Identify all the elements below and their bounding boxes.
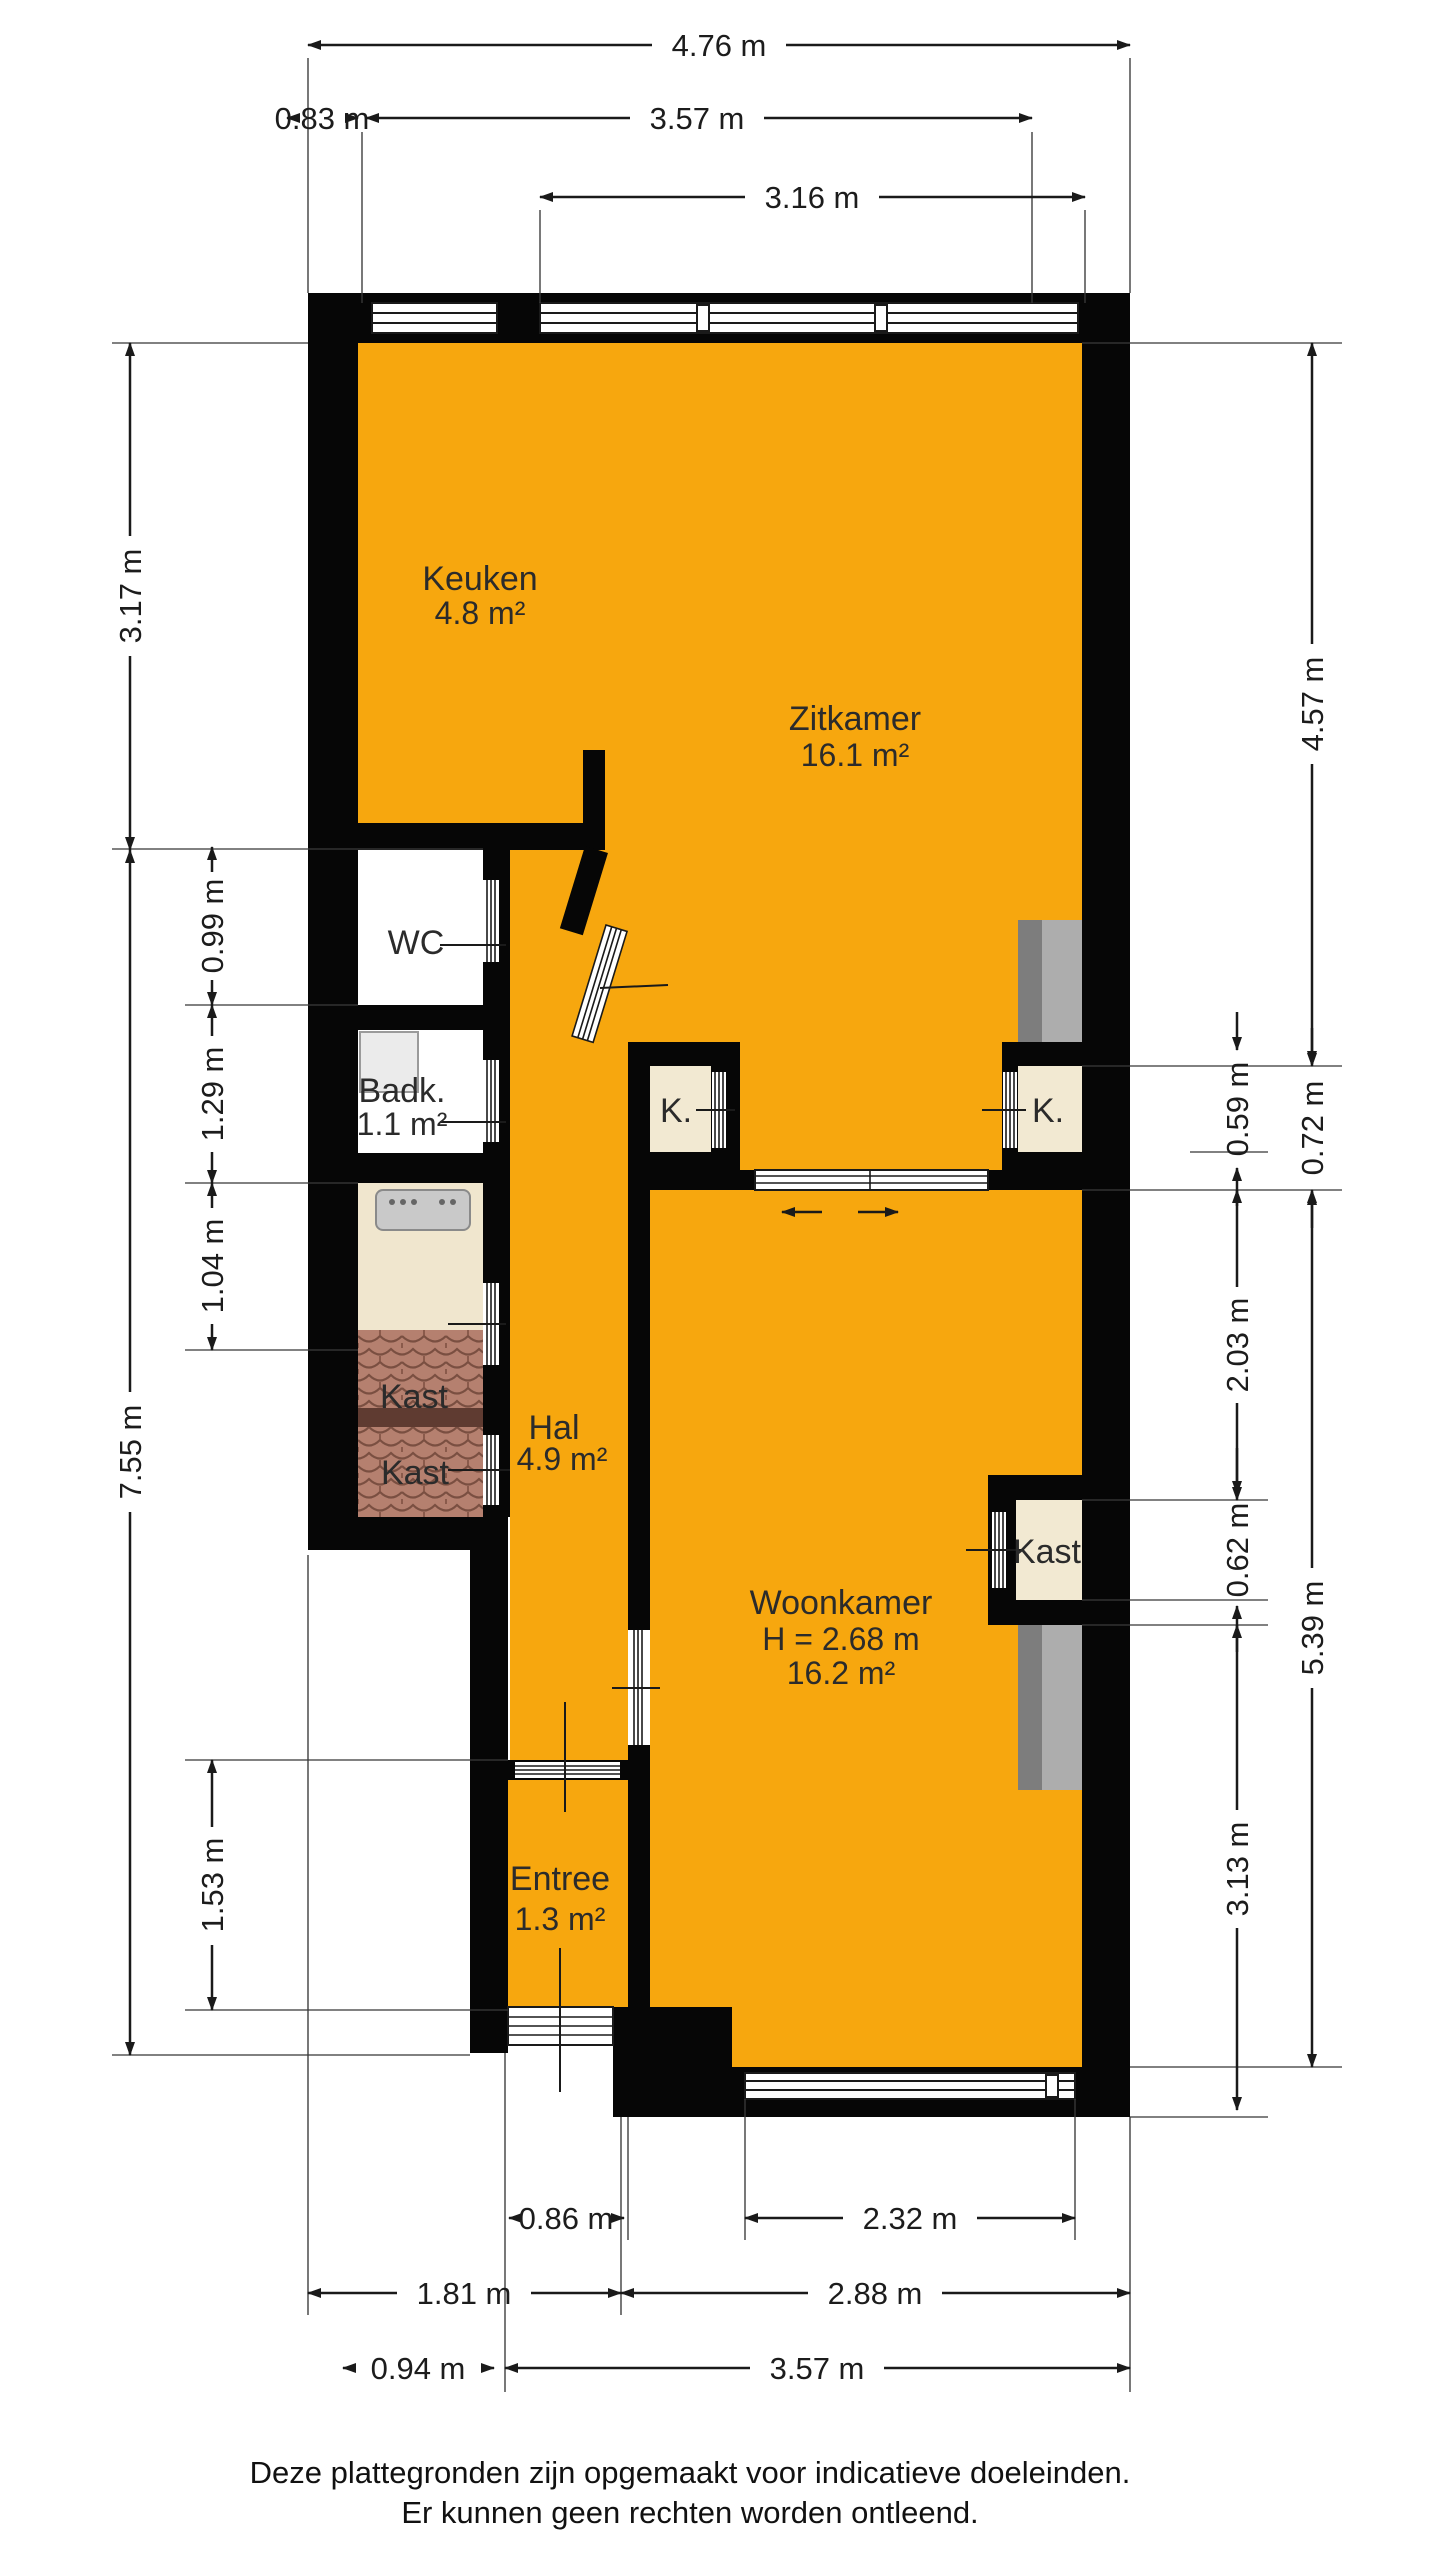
dim-label-317: 3.17 m bbox=[113, 549, 148, 644]
dim-left-keuken: 3.17 m bbox=[113, 343, 148, 850]
wall-k-rechts-top bbox=[1002, 1042, 1082, 1066]
burner-dot bbox=[400, 1199, 406, 1205]
dim-label-153: 1.53 m bbox=[195, 1838, 230, 1933]
label-kast-onder: Kast bbox=[381, 1454, 450, 1492]
wall-keuken-bottom bbox=[358, 823, 600, 850]
label-k-rechts: K. bbox=[1032, 1092, 1064, 1130]
dim-left-kast: 1.04 m bbox=[195, 1183, 230, 1350]
chimney-zitkamer-light bbox=[1042, 920, 1082, 1042]
dim-label-104: 1.04 m bbox=[195, 1219, 230, 1314]
dim-label-357: 3.57 m bbox=[650, 101, 745, 136]
dim-label-062: 0.62 m bbox=[1220, 1503, 1255, 1598]
label-keuken: Keuken bbox=[422, 560, 537, 598]
wall-entree-left bbox=[470, 1550, 508, 2053]
dim-right-zitkamer: 4.57 m bbox=[1295, 343, 1330, 1066]
dim-label-083: 0.83 m bbox=[275, 101, 370, 136]
dim-label-232: 2.32 m bbox=[863, 2201, 958, 2236]
dim-left-entree: 1.53 m bbox=[195, 1760, 230, 2010]
dim-right-kast: 0.62 m bbox=[1220, 1424, 1255, 1652]
wall-hal-woonkamer-onder bbox=[628, 1745, 650, 2007]
wall-k-links-top bbox=[628, 1042, 740, 1066]
label-badkamer-area: 1.1 m² bbox=[357, 1106, 448, 1142]
dim-left-rest: 7.55 m bbox=[113, 850, 148, 2055]
wall-right bbox=[1082, 293, 1130, 2117]
dim-label-129: 1.29 m bbox=[195, 1047, 230, 1142]
wall-step-left bbox=[308, 1517, 508, 1550]
label-badkamer: Badk. bbox=[359, 1072, 446, 1110]
dim-label-316: 3.16 m bbox=[765, 180, 860, 215]
footer-line2: Er kunnen geen rechten worden ontleend. bbox=[401, 2495, 978, 2530]
label-wc: WC bbox=[388, 924, 445, 962]
dim-bottom-rechts: 2.88 m bbox=[621, 2276, 1130, 2311]
door-entree-hal bbox=[515, 1762, 620, 1778]
wall-slide-jamb-left bbox=[740, 1170, 755, 1190]
dim-left-badkamer: 1.29 m bbox=[195, 1005, 230, 1183]
dim-bottom-offset: 0.94 m bbox=[343, 2351, 494, 2386]
wall-hal-woonkamer-boven bbox=[628, 1042, 650, 1630]
dim-label-099: 0.99 m bbox=[195, 879, 230, 974]
dim-right-woonkamer-totaal: 5.39 m bbox=[1295, 1190, 1330, 2067]
wall-badk-kast bbox=[358, 1153, 483, 1183]
wall-left bbox=[308, 293, 358, 1550]
dim-label-059: 0.59 m bbox=[1220, 1062, 1255, 1157]
label-entree: Entree bbox=[510, 1860, 610, 1898]
dim-label-086: 0.86 m bbox=[519, 2201, 614, 2236]
floorplan-page: 4.76 m 0.83 m 3.57 m 3.16 m 3.17 m bbox=[0, 0, 1440, 2560]
dim-label-072: 0.72 m bbox=[1295, 1081, 1330, 1176]
floorplan-canvas: 4.76 m 0.83 m 3.57 m 3.16 m 3.17 m bbox=[0, 0, 1440, 2560]
dim-bottom-raam: 2.32 m bbox=[745, 2201, 1075, 2236]
wall-k-rechts-bottom bbox=[1002, 1152, 1082, 1190]
label-woonkamer-area: 16.2 m² bbox=[787, 1655, 896, 1691]
dim-label-457: 4.57 m bbox=[1295, 657, 1330, 752]
window-woonkamer bbox=[745, 2073, 1075, 2099]
dim-label-203: 2.03 m bbox=[1220, 1298, 1255, 1393]
dim-left-wc: 0.99 m bbox=[195, 847, 230, 1005]
dim-top-total: 4.76 m bbox=[308, 28, 1130, 63]
dim-label-181: 1.81 m bbox=[417, 2276, 512, 2311]
label-k-links: K. bbox=[660, 1092, 692, 1130]
footer: Deze plattegronden zijn opgemaakt voor i… bbox=[250, 2455, 1131, 2530]
dim-bottom-links: 1.81 m bbox=[308, 2276, 621, 2311]
chimney-zitkamer-dark bbox=[1018, 920, 1042, 1042]
floor-passage bbox=[740, 1042, 1002, 1174]
window-mullion bbox=[875, 305, 887, 331]
dim-label-755: 7.55 m bbox=[113, 1405, 148, 1500]
label-keuken-area: 4.8 m² bbox=[435, 595, 526, 631]
wall-k-links-bottom bbox=[628, 1152, 740, 1190]
dim-label-313: 3.13 m bbox=[1220, 1822, 1255, 1917]
wall-kast-rechts-top bbox=[988, 1475, 1082, 1500]
label-woonkamer-height: H = 2.68 m bbox=[762, 1621, 919, 1657]
door-badkamer bbox=[483, 1060, 499, 1142]
dim-label-539: 5.39 m bbox=[1295, 1581, 1330, 1676]
dim-bottom-totaal: 3.57 m bbox=[505, 2351, 1130, 2386]
label-zitkamer-area: 16.1 m² bbox=[801, 737, 910, 773]
dim-label-094: 0.94 m bbox=[371, 2351, 466, 2386]
dim-top-window: 3.16 m bbox=[540, 180, 1085, 215]
label-kast-boven: Kast bbox=[380, 1378, 449, 1416]
dim-label-357b: 3.57 m bbox=[770, 2351, 865, 2386]
burner-dot bbox=[389, 1199, 395, 1205]
wall-kast-rechts-bottom bbox=[988, 1600, 1082, 1625]
dim-right-k: 0.59 m bbox=[1220, 1012, 1255, 1206]
window-mullion bbox=[1046, 2075, 1058, 2097]
chimney-woonkamer-light bbox=[1042, 1625, 1082, 1790]
burner-dot bbox=[450, 1199, 456, 1205]
label-hal-area: 4.9 m² bbox=[517, 1441, 608, 1477]
burner-dot bbox=[411, 1199, 417, 1205]
door-wc bbox=[483, 880, 499, 962]
dim-label-476: 4.76 m bbox=[672, 28, 767, 63]
label-zitkamer: Zitkamer bbox=[789, 700, 921, 738]
label-entree-area: 1.3 m² bbox=[515, 1901, 606, 1937]
window-mullion bbox=[697, 305, 709, 331]
dim-top-left-small: 0.83 m bbox=[275, 101, 370, 136]
dim-top-right: 3.57 m bbox=[366, 101, 1032, 136]
footer-line1: Deze plattegronden zijn opgemaakt voor i… bbox=[250, 2455, 1131, 2490]
burner-dot bbox=[439, 1199, 445, 1205]
window-zitkamer bbox=[540, 303, 1078, 333]
label-woonkamer: Woonkamer bbox=[750, 1584, 933, 1622]
wall-stub bbox=[583, 750, 605, 850]
label-kast-rechts: Kast bbox=[1013, 1533, 1082, 1571]
dim-bottom-entree: 0.86 m bbox=[509, 2201, 624, 2236]
dim-label-288: 2.88 m bbox=[828, 2276, 923, 2311]
counter-appliance bbox=[376, 1190, 470, 1230]
wall-slide-jamb-right bbox=[988, 1170, 1002, 1190]
dim-right-woonkamer-onder: 3.13 m bbox=[1220, 1625, 1255, 2110]
wall-wc-badk bbox=[358, 1005, 483, 1030]
window-keuken bbox=[372, 303, 497, 333]
chimney-woonkamer-dark bbox=[1018, 1625, 1042, 1790]
